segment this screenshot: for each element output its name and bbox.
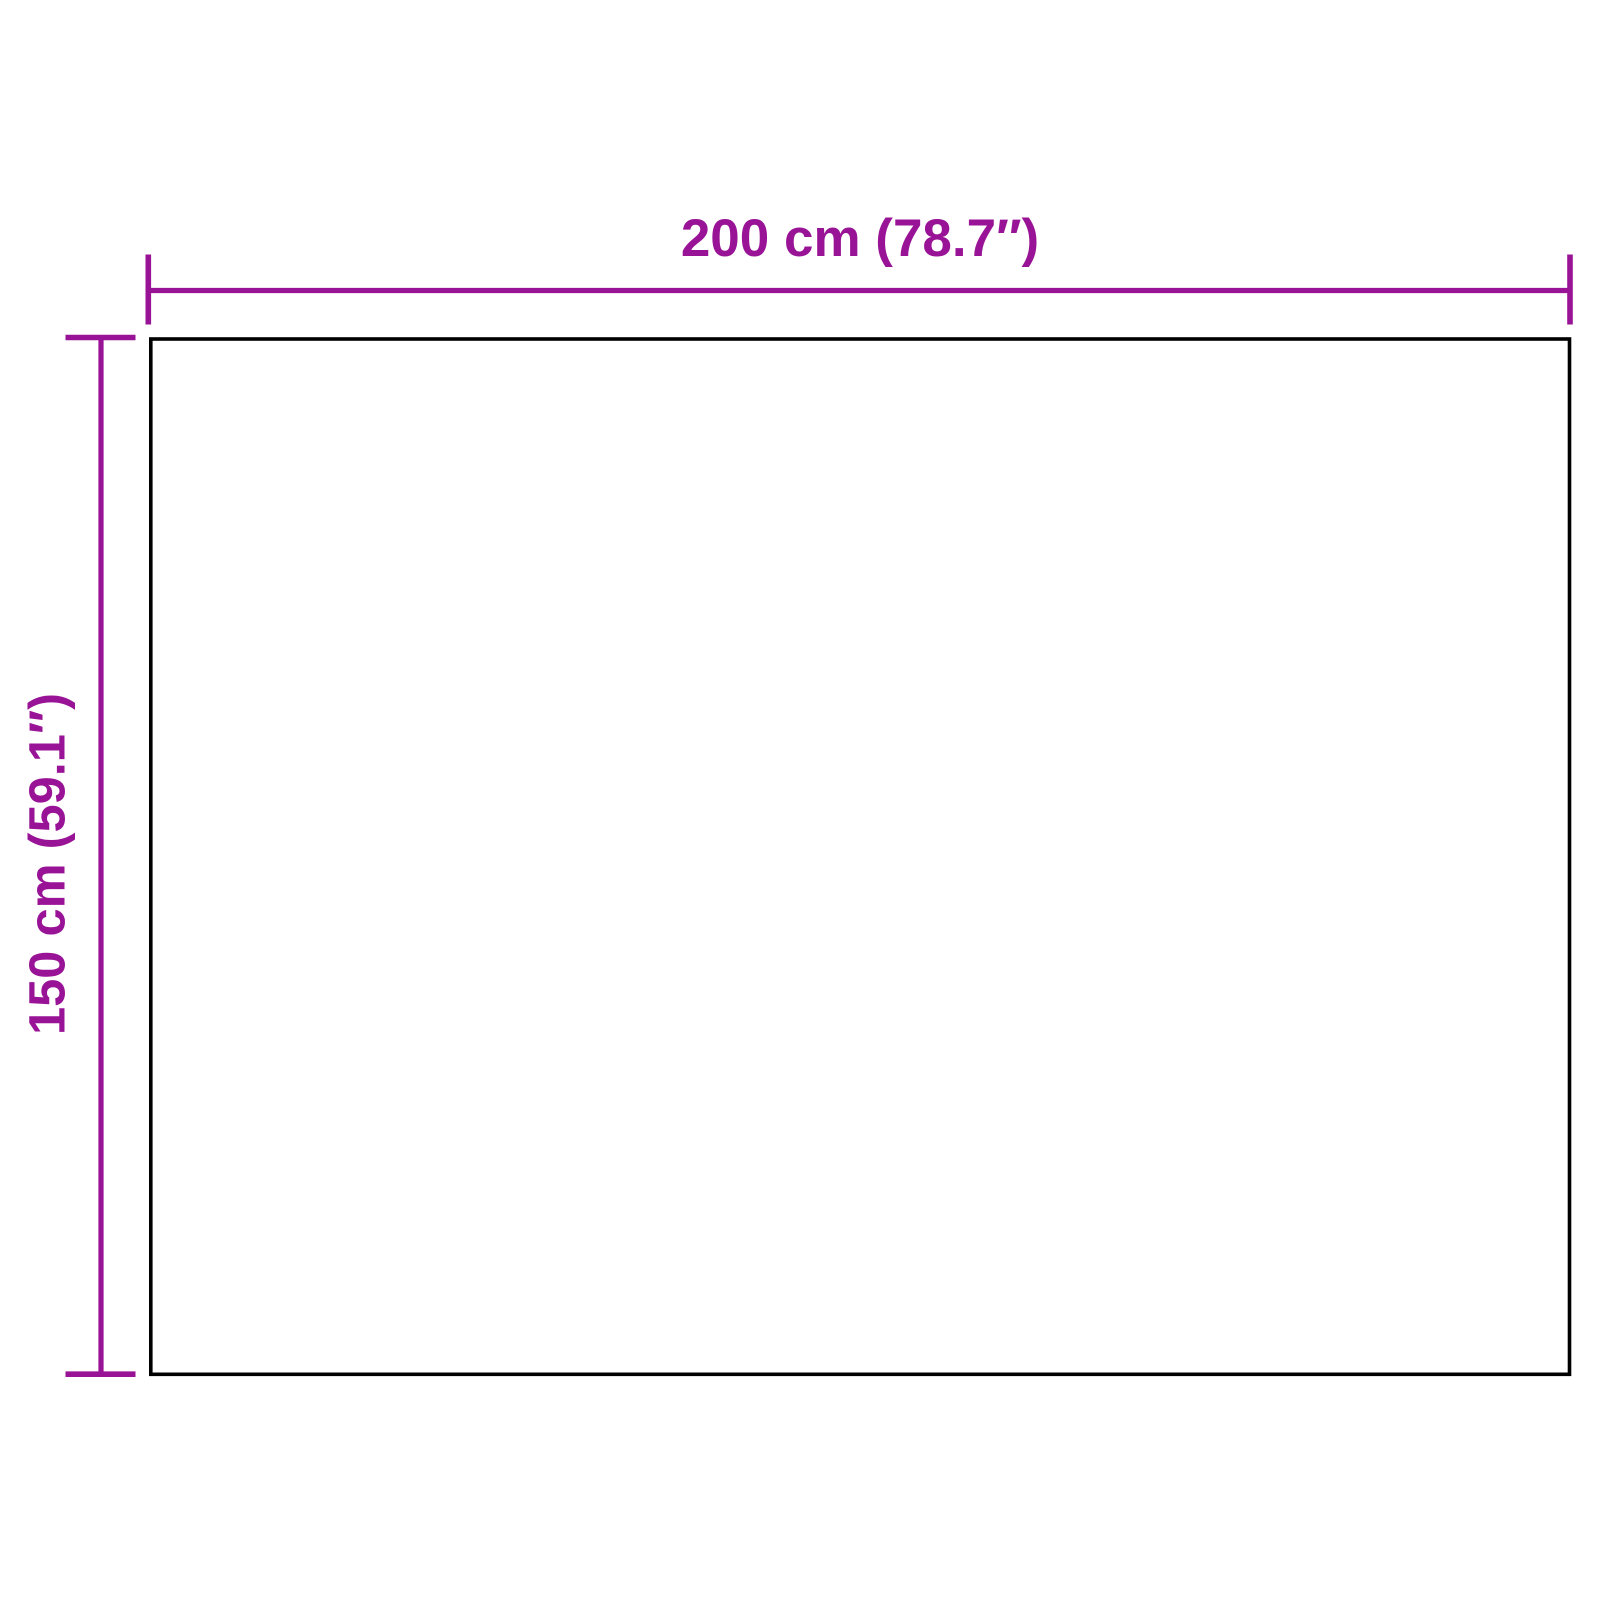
- svg-text:150 cm (59.1″): 150 cm (59.1″): [18, 693, 75, 1035]
- svg-text:200 cm (78.7″): 200 cm (78.7″): [681, 209, 1039, 268]
